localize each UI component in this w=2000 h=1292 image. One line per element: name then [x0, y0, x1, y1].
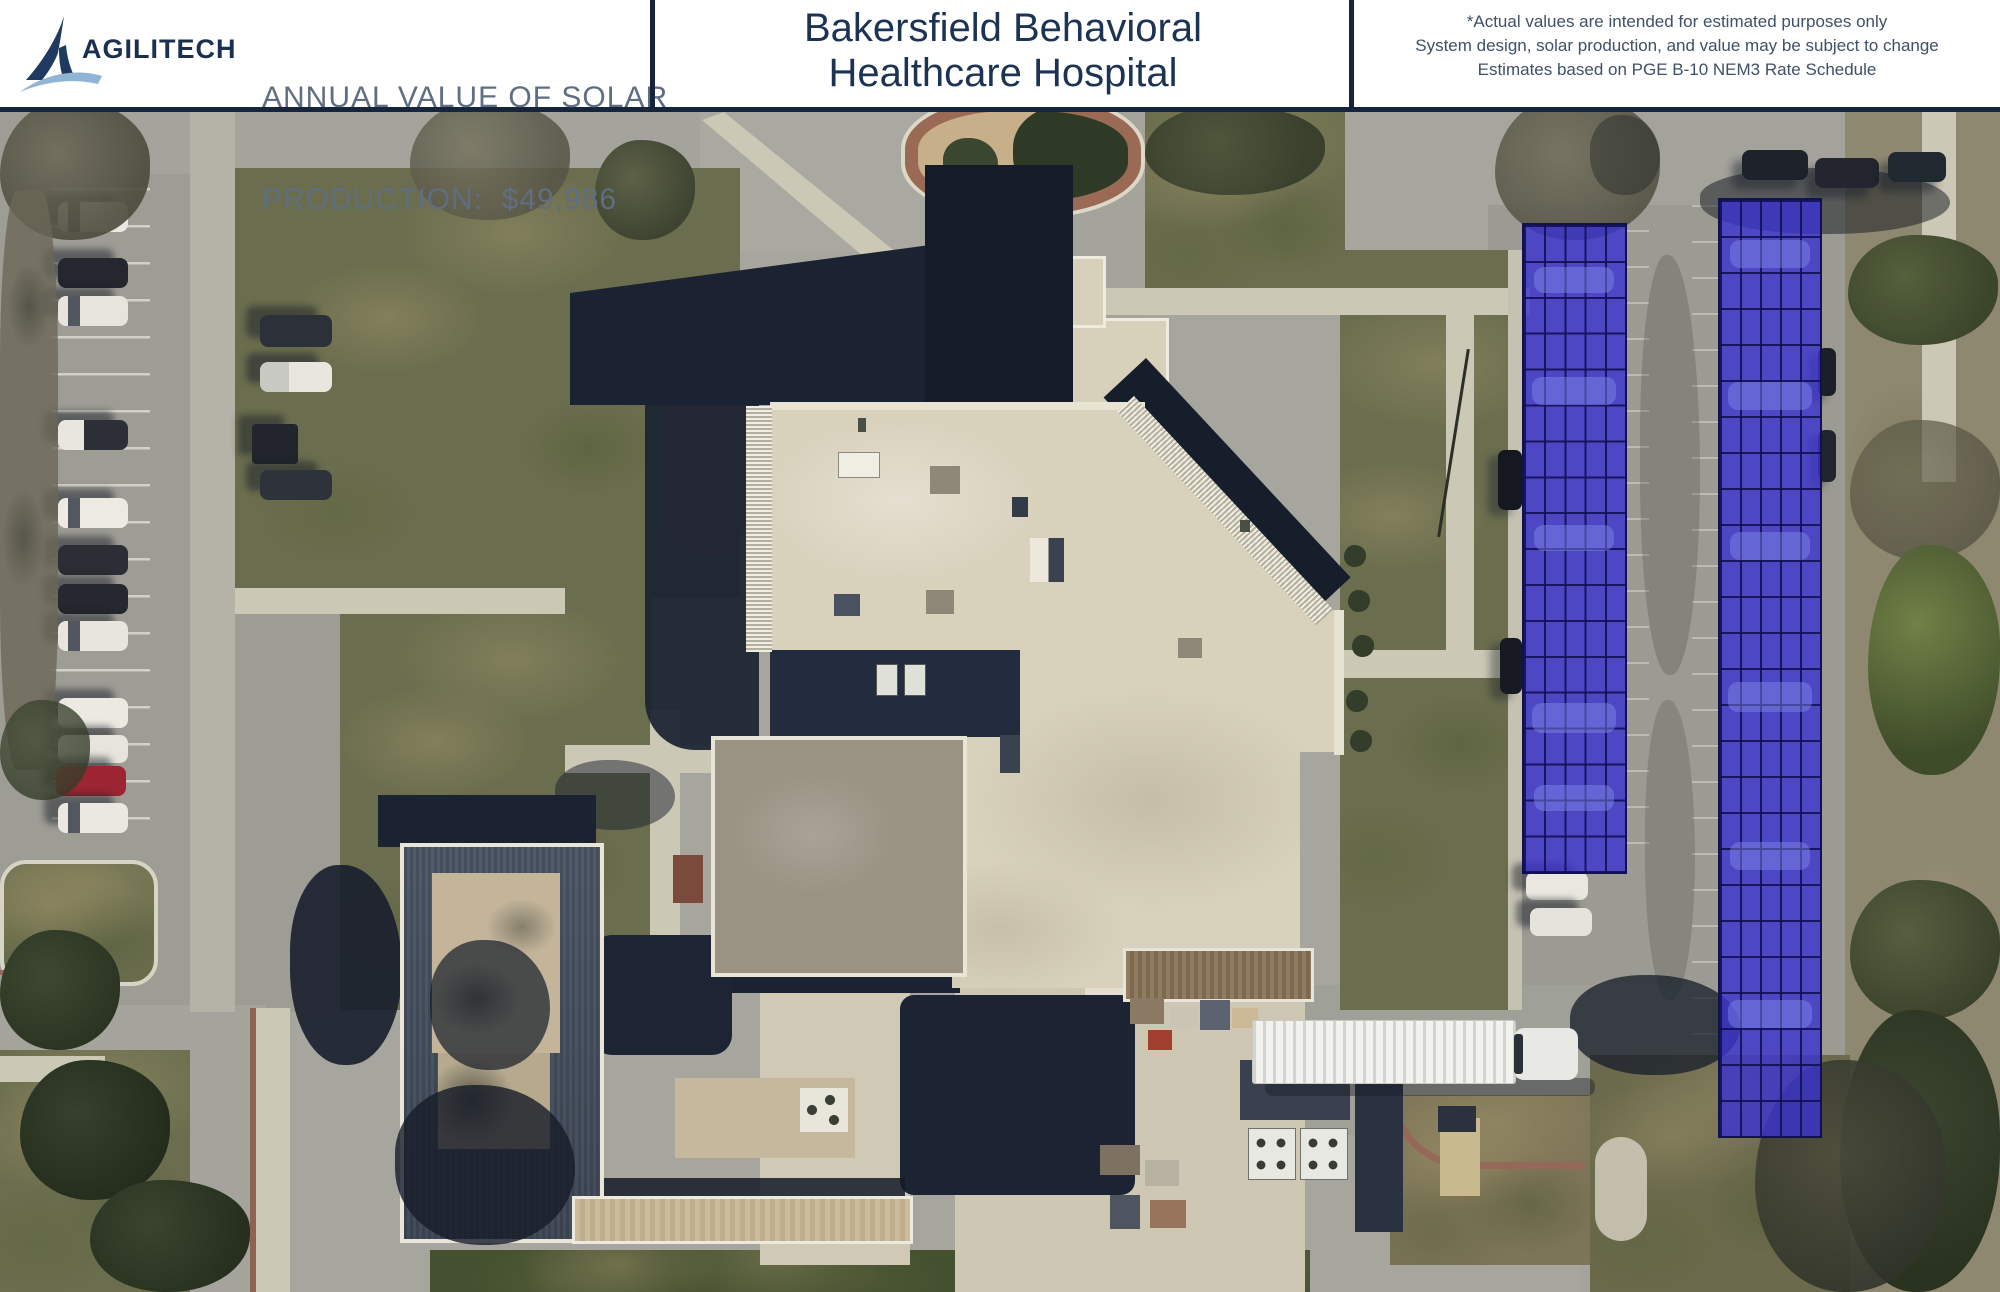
walk-east-vertical: [1446, 315, 1474, 660]
hvac-unit-4: [1012, 497, 1028, 517]
roof-vent-2: [1240, 520, 1250, 532]
car-pickup-white: [58, 420, 128, 450]
clutter-box-8: [1110, 1195, 1140, 1229]
sidewalk-lawn-east-edge: [1508, 250, 1522, 1010]
car-under-panel: [1728, 682, 1812, 712]
clutter-box-4: [1200, 1000, 1230, 1030]
car-black-2: [58, 545, 128, 575]
tree-shadow-ne: [1145, 105, 1325, 195]
shrub-east-3: [1352, 635, 1374, 657]
car-under-panel: [1534, 525, 1614, 551]
car-aisle-black-2: [1500, 638, 1522, 694]
car-silver: [260, 362, 332, 392]
fan-unit-a: [1248, 1128, 1296, 1180]
title-line-1: Bakersfield Behavioral: [657, 6, 1349, 51]
parapet-east: [1334, 610, 1344, 755]
car-under-panel: [1730, 240, 1810, 268]
truck-trailer: [1252, 1020, 1516, 1084]
brush-left-edge: [0, 190, 58, 770]
tree-right-leafy: [1868, 545, 2000, 775]
walk-east-h-upper: [1090, 288, 1530, 315]
car-white-2: [58, 296, 128, 326]
roof-vent-1: [858, 418, 866, 432]
car-suv-dark: [260, 315, 332, 347]
logo-graphic: AGILITECH: [18, 12, 248, 96]
shrub-east-2: [1348, 590, 1370, 612]
clutter-box-2: [1170, 1006, 1198, 1028]
clutter-box-3: [1148, 1030, 1172, 1050]
disclaimer-line-2: System design, solar production, and val…: [1354, 34, 2000, 58]
car-below-array-1: [1526, 872, 1588, 900]
car-black-3: [58, 584, 128, 614]
parapet-ribbed-west: [746, 406, 772, 652]
header-bar: AGILITECH ANNUAL VALUE OF SOLAR PRODUCTI…: [0, 0, 2000, 112]
car-ne-2: [1815, 158, 1879, 188]
tree-shadow-courtyard-mid: [430, 940, 550, 1070]
sidewalk-se-curve: [1595, 1137, 1647, 1241]
clutter-box-6: [1100, 1145, 1140, 1175]
entrance-canopy: [925, 165, 1073, 405]
tree-right-2: [1850, 420, 2000, 560]
clutter-box-7: [1145, 1160, 1179, 1186]
car-ne-1: [1742, 150, 1808, 180]
disclaimer-line-3: Estimates based on PGE B-10 NEM3 Rate Sc…: [1354, 58, 2000, 82]
production-line-2: PRODUCTION: $49,986: [262, 183, 668, 217]
shadow-west-band: [645, 390, 759, 750]
parapet-top: [770, 402, 1145, 410]
car-under-panel: [1728, 382, 1812, 410]
production-line-1: ANNUAL VALUE OF SOLAR: [262, 81, 668, 115]
title-line-2: Healthcare Hospital: [657, 51, 1349, 96]
hvac-unit-6: [926, 590, 954, 614]
parking-aisle-gutter: [190, 112, 235, 1012]
page-title: Bakersfield Behavioral Healthcare Hospit…: [657, 6, 1349, 96]
tree-sw-3: [90, 1180, 250, 1292]
solar-array-east: [1718, 198, 1822, 1138]
shed-roof-dark: [1438, 1106, 1476, 1132]
tree-right-3: [1850, 880, 2000, 1020]
truck-cab: [1514, 1028, 1578, 1080]
logo-wordmark: AGILITECH: [82, 34, 237, 64]
tree-sw-2: [20, 1060, 170, 1200]
fan-unit-b: [1300, 1128, 1348, 1180]
hvac-unit-5: [834, 594, 860, 616]
car-under-panel: [1728, 1000, 1812, 1028]
car-under-panel: [1730, 532, 1810, 560]
car-under-panel: [1532, 703, 1616, 733]
tree-right-1: [1848, 235, 1998, 345]
solar-array-west: [1522, 223, 1627, 874]
shrub-east-4: [1346, 690, 1368, 712]
hvac-gap-unit-2: [904, 664, 926, 696]
clutter-box-9: [1150, 1200, 1186, 1228]
brick-structure: [673, 855, 703, 903]
equipment-pad-tanks: [800, 1088, 848, 1132]
proposal-page: AGILITECH ANNUAL VALUE OF SOLAR PRODUCTI…: [0, 0, 2000, 1292]
hvac-unit-2: [930, 466, 960, 494]
truck-windshield: [1514, 1034, 1523, 1074]
logo-a-icon: [26, 16, 64, 80]
car-under-panel: [1534, 785, 1614, 811]
car-under-panel: [1730, 842, 1810, 870]
dumpster-dark: [252, 424, 298, 464]
car-truck-dark: [260, 470, 332, 500]
car-white-4: [58, 621, 128, 651]
sidewalk-south-vertical: [256, 1008, 290, 1292]
annual-production-label: ANNUAL VALUE OF SOLAR PRODUCTION: $49,98…: [262, 13, 668, 285]
car-black-1: [58, 258, 128, 288]
shadow-courtyard-north: [378, 795, 596, 847]
car-ne-3: [1888, 152, 1946, 182]
car-aisle-black-1: [1498, 450, 1522, 510]
walk-west-horizontal: [235, 588, 565, 614]
car-white-7: [58, 803, 128, 833]
hvac-unit-7: [1000, 735, 1020, 773]
shrub-east-1: [1344, 545, 1366, 567]
clutter-box-1: [1130, 998, 1164, 1024]
car-white-3: [58, 498, 128, 528]
shadow-truck-east: [1570, 975, 1740, 1075]
car-under-panel: [1532, 377, 1616, 405]
car-under-panel: [1534, 267, 1614, 293]
lawn-east-main: [1340, 250, 1512, 1010]
hvac-unit-8: [1178, 638, 1202, 658]
hvac-unit-3: [1030, 538, 1064, 582]
disclaimer-line-1: *Actual values are intended for estimate…: [1354, 10, 2000, 34]
curb-south-red: [250, 1008, 256, 1292]
logo: AGILITECH: [18, 12, 248, 96]
canopy-brown-roof: [1123, 948, 1314, 1002]
hvac-unit-1: [838, 452, 880, 478]
header-divider-left: [650, 0, 655, 107]
taupe-roof: [711, 736, 967, 977]
tree-sw-4: [0, 700, 90, 800]
disclaimer: *Actual values are intended for estimate…: [1354, 10, 2000, 82]
car-below-array-2: [1530, 908, 1592, 936]
shrub-east-5: [1350, 730, 1372, 752]
hvac-gap-unit-1: [876, 664, 898, 696]
tree-shadow-lot: [1590, 115, 1660, 195]
walkway-canopy-tan: [572, 1196, 913, 1244]
tree-sw-1: [0, 930, 120, 1050]
